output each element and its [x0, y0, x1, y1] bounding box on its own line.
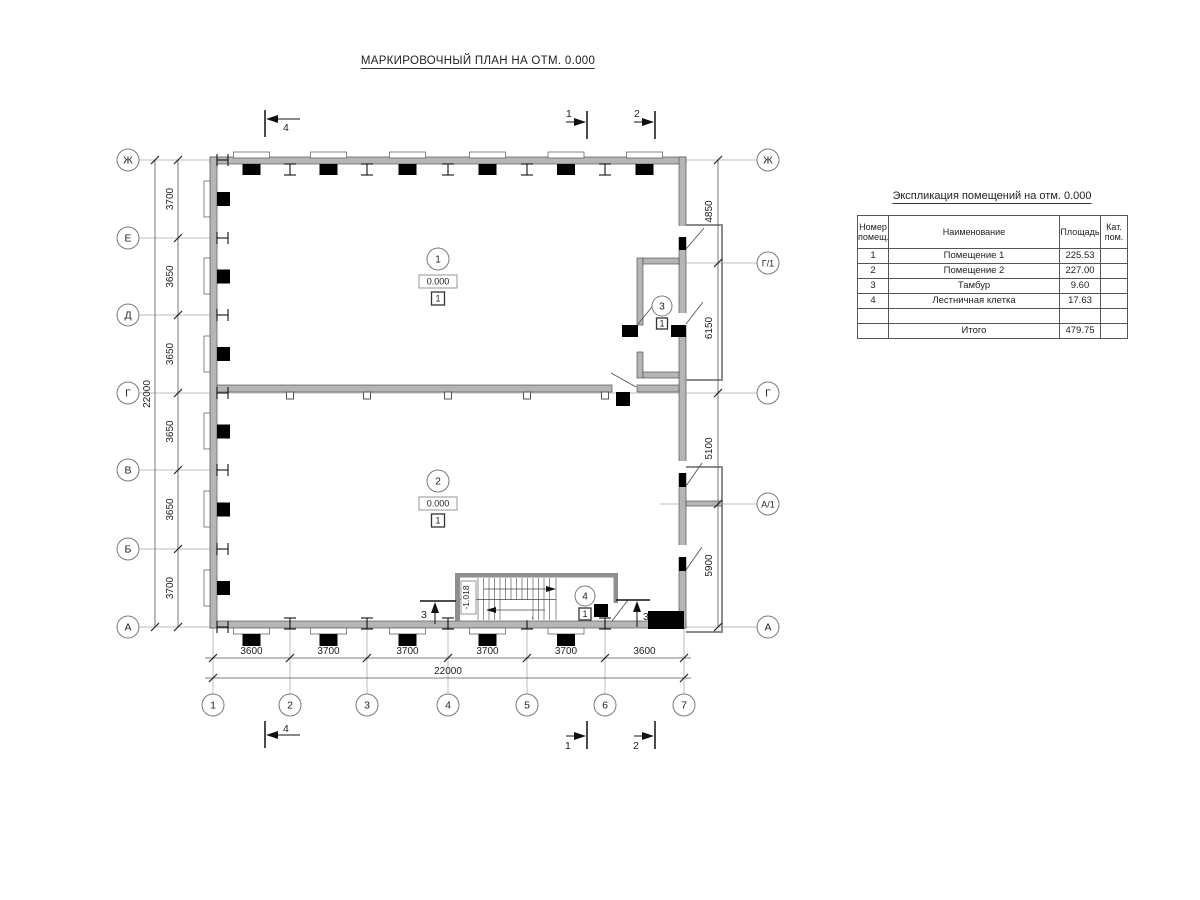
svg-text:1: 1 [565, 740, 571, 752]
room-number: 4 [582, 592, 588, 603]
grid-axis-bubble: А/1 [761, 500, 775, 510]
wall-panel-mark [479, 164, 497, 175]
svg-text:5100: 5100 [704, 437, 715, 460]
axis-bubbles-right: Ж Г/1 Г А/1 А [757, 149, 779, 638]
grid-axis-bubble: Г [765, 388, 771, 400]
table-row: 2 Помещение 2 227.00 [858, 264, 1128, 279]
door-leaf-mark [671, 325, 686, 337]
room-number: 3 [659, 302, 665, 313]
door-leaf-mark [622, 325, 638, 337]
svg-text:3600: 3600 [633, 646, 656, 657]
room-label-4: 4 1 [575, 586, 595, 620]
door-leaf-mark [679, 473, 686, 487]
grid-axis-bubble: А [764, 622, 771, 634]
grid-axis-bubble: Г/1 [762, 259, 774, 269]
section-mark-4-bottom: 4 [265, 721, 300, 748]
svg-text:3700: 3700 [165, 576, 176, 599]
floor-type-mark: 1 [582, 609, 587, 619]
svg-text:3700: 3700 [317, 646, 340, 657]
interior-wall-axis-g [217, 373, 679, 406]
svg-text:3600: 3600 [240, 646, 263, 657]
grid-axis-bubble: Б [125, 544, 132, 556]
table-empty-row [858, 309, 1128, 324]
entrance-pad-mark [648, 611, 684, 629]
section-mark-1-top: 1 [566, 108, 587, 139]
dimension-right: 4850 6150 5100 5900 [704, 156, 722, 631]
door-leaf-mark [679, 557, 686, 571]
room-number: 2 [435, 477, 441, 488]
drawing-canvas: МАРКИРОВОЧНЫЙ ПЛАН НА ОТМ. 0.000 [0, 0, 1200, 900]
wall-panel-mark [217, 581, 230, 595]
svg-text:3650: 3650 [165, 265, 176, 288]
grid-axis-bubble: А [124, 622, 131, 634]
grid-axis-bubble: Ж [763, 155, 773, 167]
svg-text:2: 2 [633, 740, 639, 752]
wall-panel-mark [217, 503, 230, 517]
wall-panel-mark [320, 164, 338, 175]
floor-type-mark: 1 [659, 319, 664, 329]
steel-column-icon [217, 154, 228, 633]
section-mark-4-top: 4 [265, 110, 300, 137]
table-row: 1 Помещение 1 225.53 [858, 249, 1128, 264]
wall-panel-mark [399, 634, 417, 646]
total-label: Итого [889, 324, 1060, 339]
wall-panel-mark [479, 634, 497, 646]
svg-text:22000: 22000 [142, 380, 153, 408]
room-label-3: 3 1 [652, 296, 672, 329]
wall-panel-mark [217, 425, 230, 439]
svg-text:6150: 6150 [704, 316, 715, 339]
wall-panel-mark [320, 634, 338, 646]
section-mark-1-bottom: 1 [565, 721, 587, 752]
col-header-area: Площадь [1060, 216, 1101, 249]
wall-panel-mark [636, 164, 654, 175]
svg-text:3700: 3700 [555, 646, 578, 657]
grid-axis-bubble: Ж [123, 155, 133, 167]
grid-axis-bubble: 4 [445, 700, 451, 712]
table-total-row: Итого 479.75 [858, 324, 1128, 339]
dimension-left: 3700 3650 3650 3650 3650 3700 22000 [142, 156, 182, 631]
grid-axis-bubble: Д [124, 310, 131, 322]
right-wall-doors [622, 228, 704, 571]
svg-text:3: 3 [643, 611, 649, 623]
col-header-category: Кат. пом. [1101, 216, 1128, 249]
svg-text:1: 1 [566, 108, 572, 120]
room-label-2: 2 0.000 1 [419, 470, 457, 527]
grid-axis-bubble: 3 [364, 700, 370, 712]
section-mark-3-left: 3 [420, 601, 456, 624]
wall-panel-mark [217, 192, 230, 206]
wall-panel-mark [217, 347, 230, 361]
grid-axis-bubble: 5 [524, 700, 530, 712]
svg-text:3700: 3700 [165, 187, 176, 210]
svg-text:3700: 3700 [396, 646, 419, 657]
room-elevation: 0.000 [427, 277, 450, 287]
wall-panel-mark [217, 270, 230, 284]
table-header-row: Номер помещ. Наименование Площадь Кат. п… [858, 216, 1128, 249]
stairwell: -1.018 [455, 573, 628, 621]
svg-text:3700: 3700 [476, 646, 499, 657]
floor-type-mark: 1 [435, 516, 440, 526]
door-leaf-mark [679, 237, 686, 250]
total-value: 479.75 [1060, 324, 1101, 339]
room-schedule-table: Номер помещ. Наименование Площадь Кат. п… [857, 215, 1128, 339]
wall-panel-mark [399, 164, 417, 175]
svg-text:3650: 3650 [165, 420, 176, 443]
svg-text:22000: 22000 [434, 666, 462, 677]
svg-text:3650: 3650 [165, 498, 176, 521]
svg-text:3650: 3650 [165, 342, 176, 365]
door-leaf-mark [616, 392, 630, 406]
grid-axis-bubble: 1 [210, 700, 216, 712]
section-mark-2-top: 2 [634, 108, 655, 139]
svg-text:4: 4 [283, 122, 289, 134]
wall-panel-mark [557, 634, 575, 646]
floor-plan: -1.018 1 0.000 1 2 0.000 1 3 1 [0, 0, 1200, 790]
grid-axis-bubble: 7 [681, 700, 687, 712]
wall-panel-mark [243, 164, 261, 175]
axis-bubbles-bottom: 1 2 3 4 5 6 7 [202, 694, 695, 716]
room-schedule-title: Экспликация помещений на отм. 0.000 [892, 190, 1091, 204]
grid-axis-bubble: Е [124, 233, 131, 245]
wall-panel-mark [557, 164, 575, 175]
room-label-1: 1 0.000 1 [419, 248, 457, 305]
grid-axis-bubble: 2 [287, 700, 293, 712]
floor-type-mark: 1 [435, 294, 440, 304]
section-mark-2-bottom: 2 [633, 721, 655, 752]
svg-text:4850: 4850 [704, 200, 715, 223]
col-header-name: Наименование [889, 216, 1060, 249]
axis-bubbles-left: Ж Е Д Г В Б А [117, 149, 139, 638]
door-leaf-mark [594, 604, 608, 617]
table-row: 4 Лестничная клетка 17.63 [858, 294, 1128, 309]
wall-panel-mark [243, 634, 261, 646]
table-row: 3 Тамбур 9.60 [858, 279, 1128, 294]
svg-text:5900: 5900 [704, 554, 715, 577]
grid-axis-bubble: Г [125, 388, 131, 400]
grid-axis-bubble: 6 [602, 700, 608, 712]
grid-axis-bubble: В [124, 465, 131, 477]
stair-landing-elevation: -1.018 [461, 585, 471, 609]
svg-text:3: 3 [421, 609, 427, 621]
room-number: 1 [435, 255, 441, 266]
svg-text:4: 4 [283, 723, 289, 735]
col-header-number: Номер помещ. [858, 216, 889, 249]
svg-text:2: 2 [634, 108, 640, 120]
room-elevation: 0.000 [427, 499, 450, 509]
